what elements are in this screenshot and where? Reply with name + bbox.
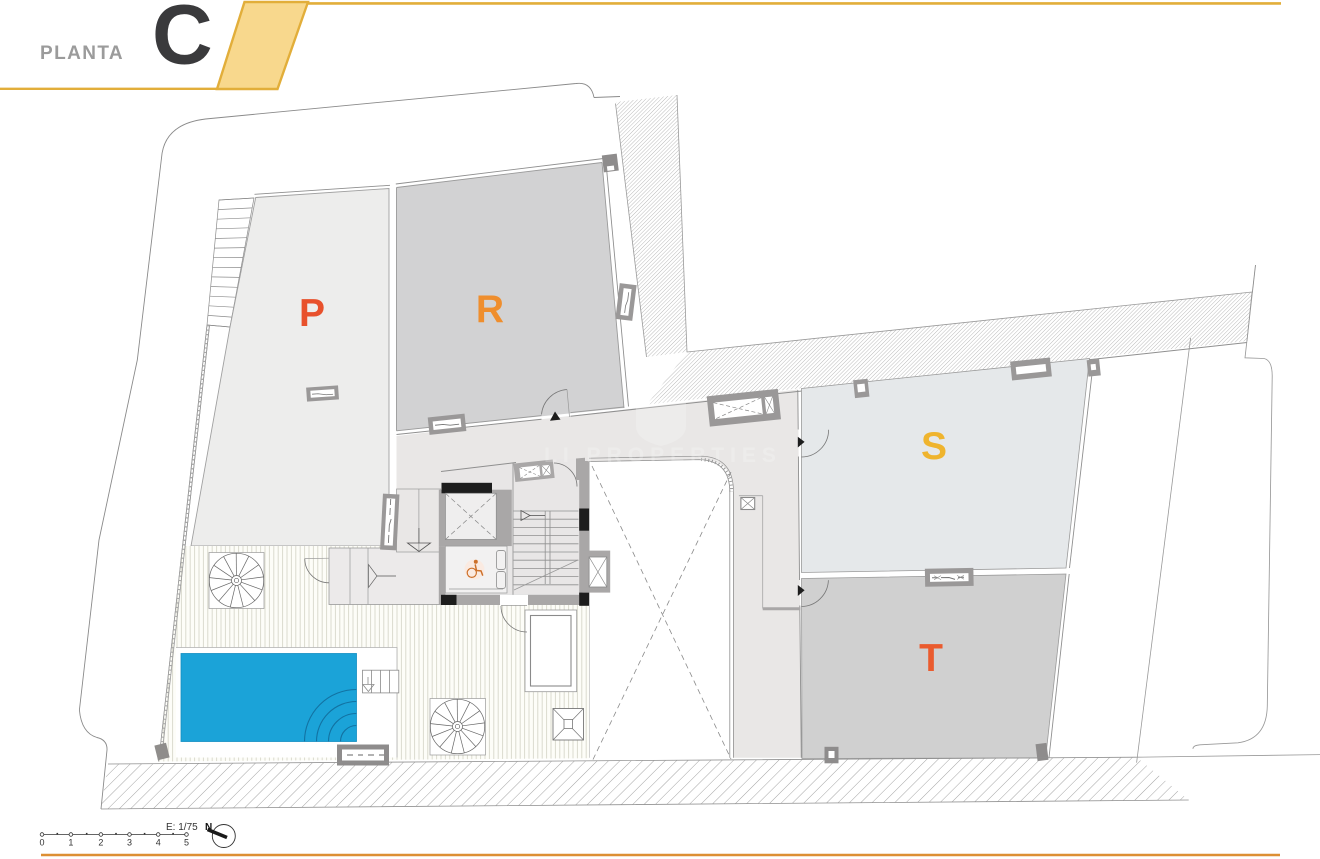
svg-text:E: 1/75: E: 1/75 <box>166 822 198 833</box>
svg-text:PLANTA: PLANTA <box>40 43 124 64</box>
svg-text:LI PROPERTIES: LI PROPERTIES <box>544 444 782 467</box>
svg-text:1: 1 <box>68 838 73 848</box>
svg-text:4: 4 <box>156 838 161 848</box>
svg-text:0: 0 <box>39 838 44 848</box>
svg-text:5: 5 <box>184 838 189 848</box>
svg-text:2: 2 <box>98 838 103 848</box>
svg-text:P: P <box>299 292 325 335</box>
svg-text:3: 3 <box>127 838 132 848</box>
svg-text:C: C <box>152 0 213 82</box>
svg-text:R: R <box>476 288 504 331</box>
svg-text:S: S <box>921 425 947 468</box>
svg-text:T: T <box>919 637 943 680</box>
